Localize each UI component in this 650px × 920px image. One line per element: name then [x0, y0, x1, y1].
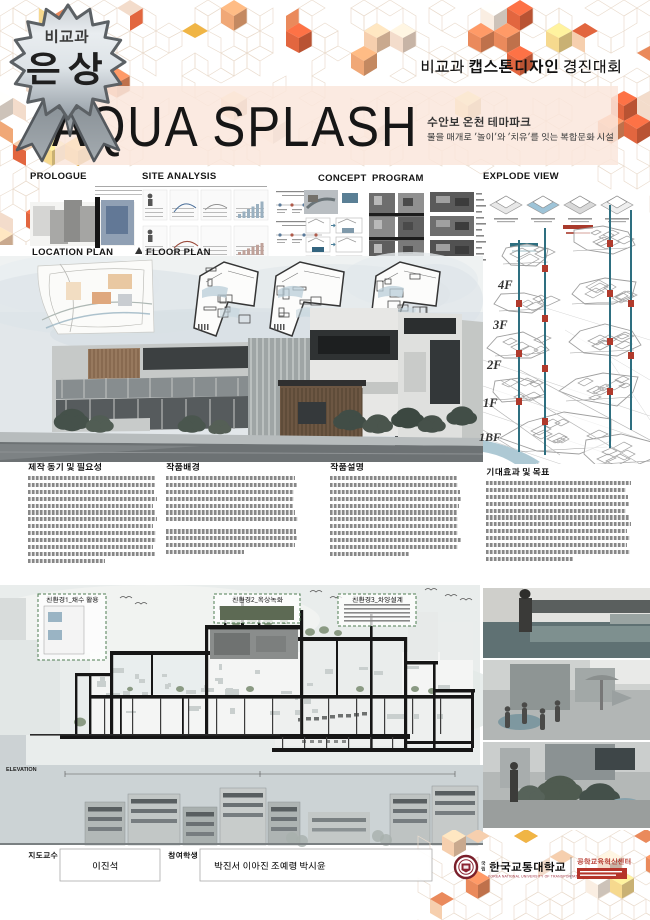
svg-text:KOREA NATIONAL UNIVERSITY OF T: KOREA NATIONAL UNIVERSITY OF TRANSPORTAT… — [488, 875, 585, 879]
